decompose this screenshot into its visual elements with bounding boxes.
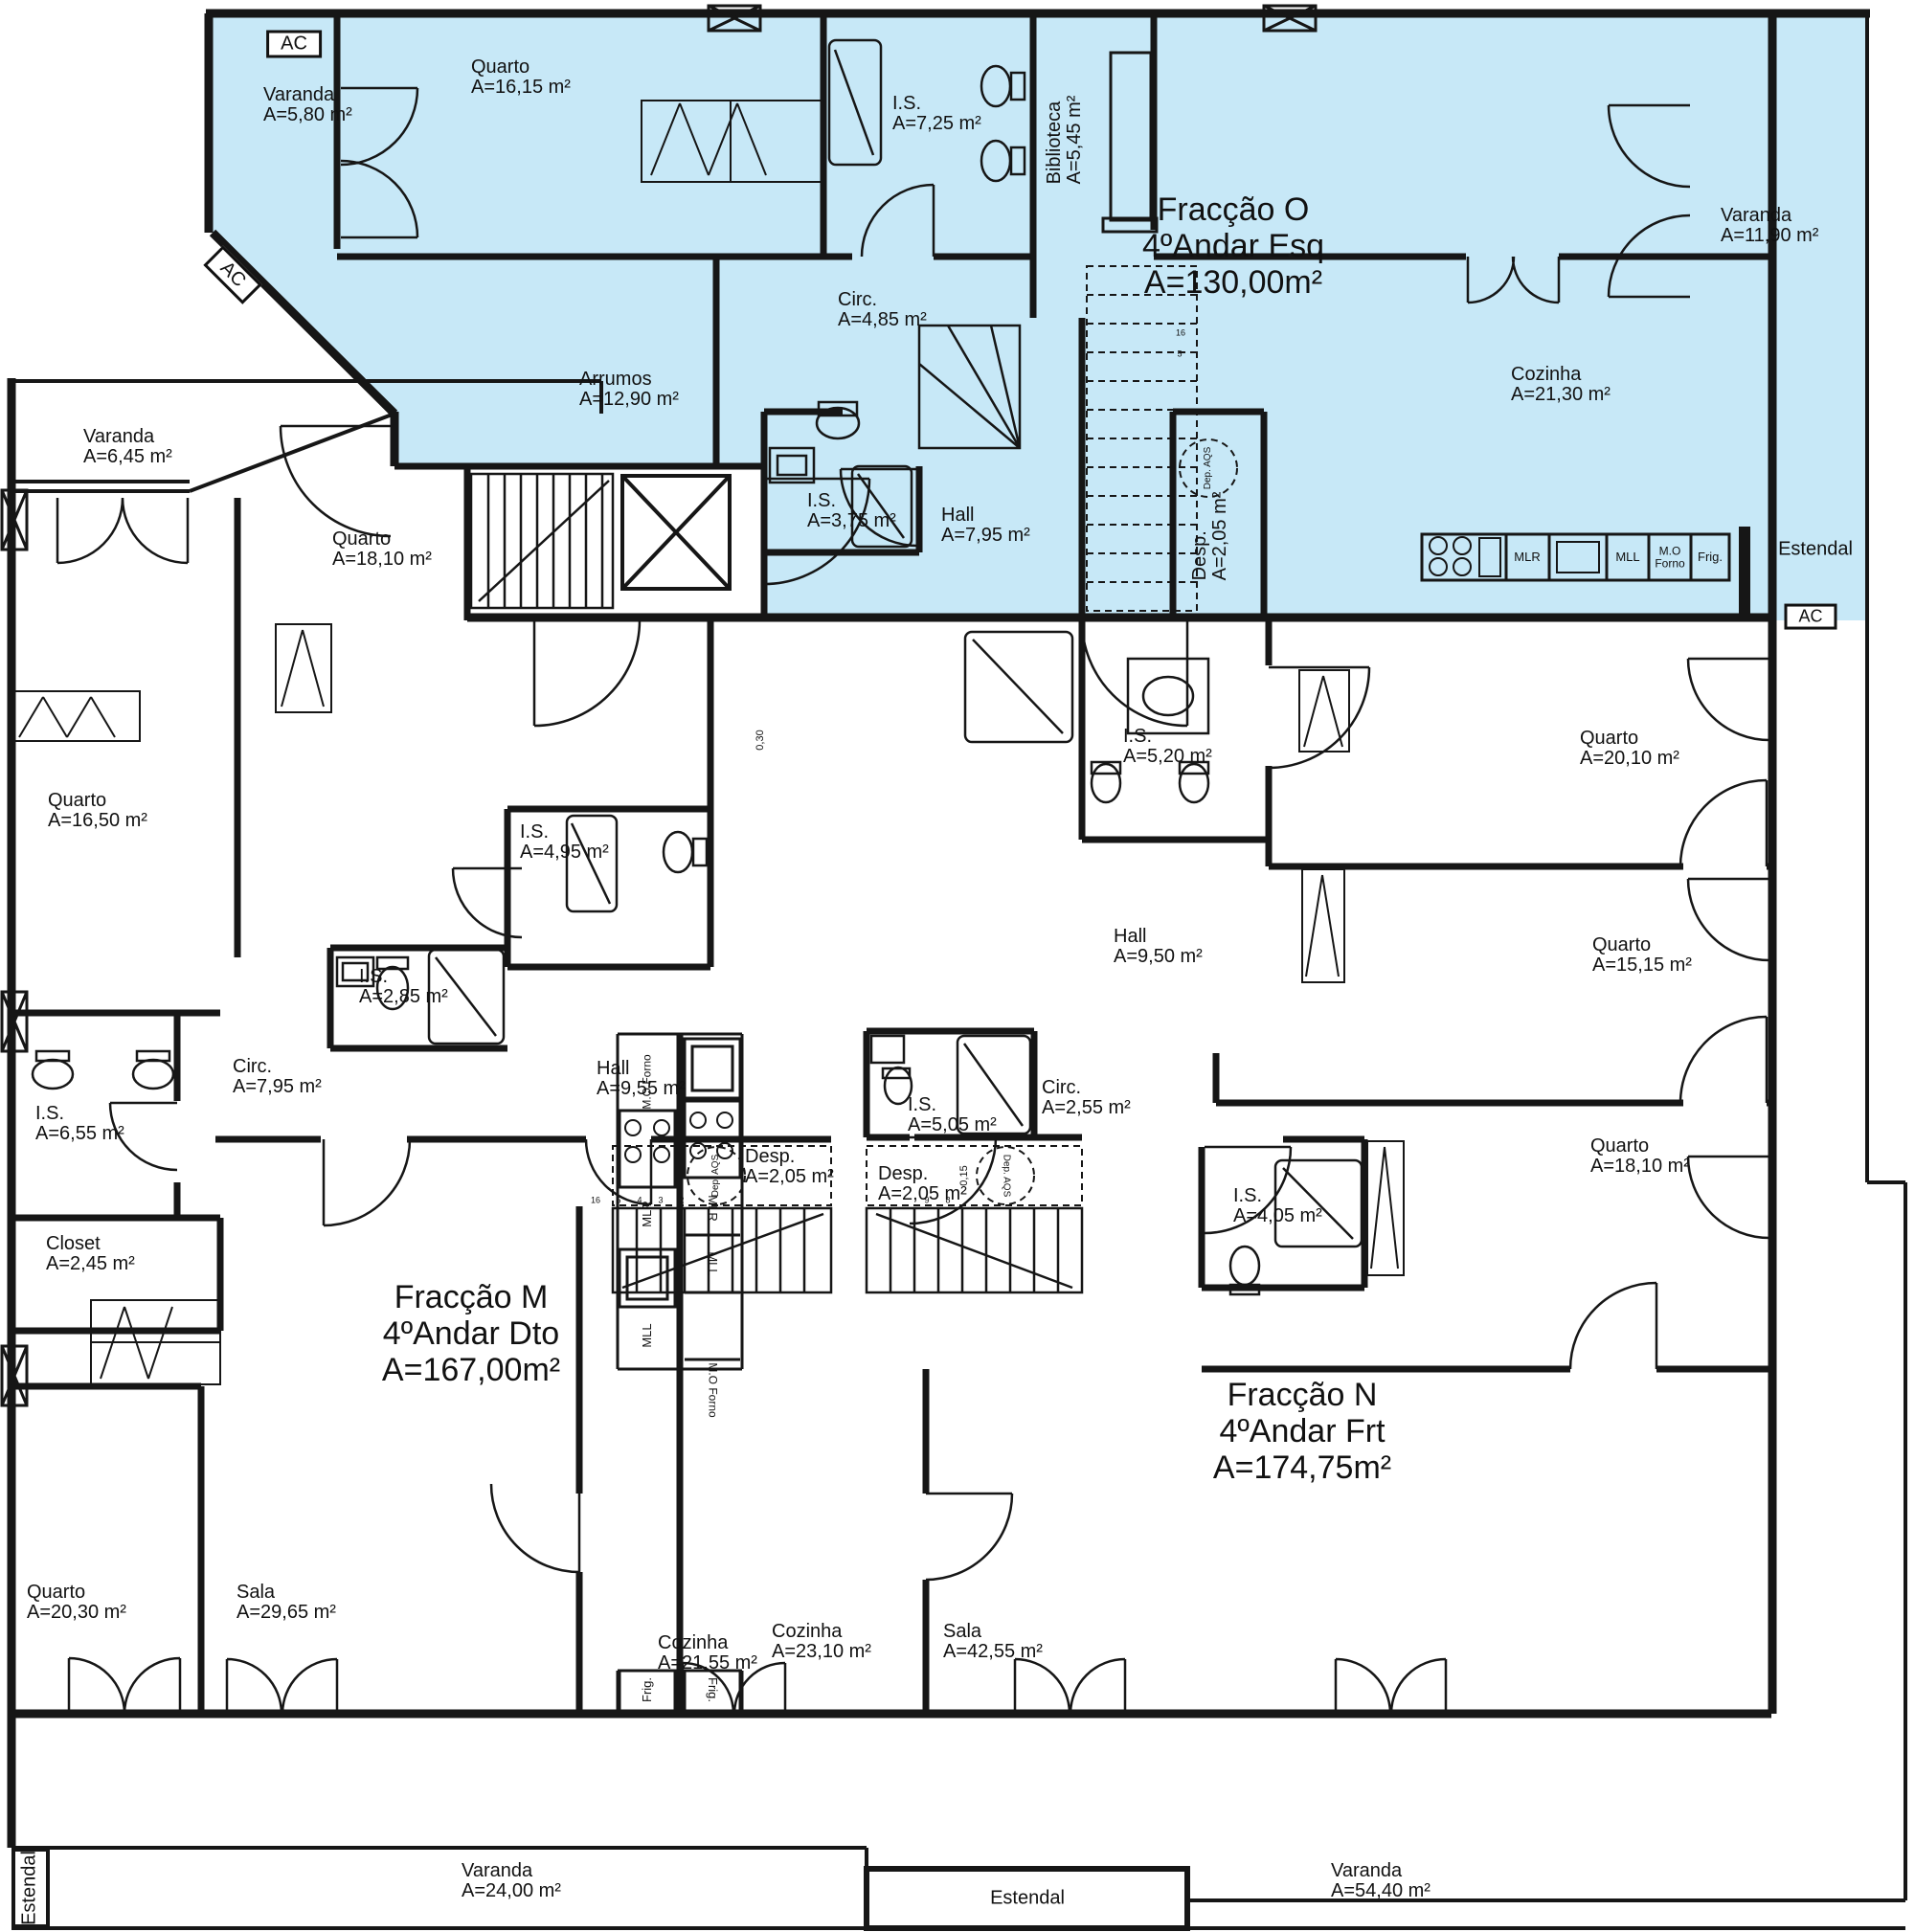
room-name: Biblioteca [1045, 96, 1065, 185]
stair-number-label: 16 [1176, 328, 1185, 337]
room-area: A=23,10 m² [772, 1642, 871, 1662]
room-area: A=2,45 m² [46, 1254, 135, 1274]
room-area: A=5,05 m² [908, 1115, 997, 1135]
appliance-label: M.O Forno [1655, 545, 1684, 569]
room-name: Varanda [1331, 1861, 1431, 1881]
fraction-title-M: Fracção M4ºAndar DtoA=167,00m² [382, 1279, 560, 1388]
appliance-label: MLR [706, 1195, 719, 1221]
room-area: A=29,65 m² [237, 1603, 336, 1623]
stair-number-label: 8 [945, 1196, 950, 1204]
room-area: A=9,50 m² [1114, 947, 1203, 967]
room-label-n-is: I.S.A=5,05 m² [908, 1095, 997, 1135]
room-area: A=20,30 m² [27, 1603, 126, 1623]
fraction-name: Fracção N [1213, 1377, 1391, 1413]
room-label-n-quarto: QuartoA=20,10 m² [1580, 729, 1679, 769]
ac-unit-label: AC [203, 245, 261, 303]
room-area: A=15,15 m² [1592, 955, 1692, 976]
room-name: Quarto [1580, 729, 1679, 749]
appliance-label: Frig. [706, 1677, 719, 1702]
stair-number-label: 4 [637, 1196, 642, 1204]
room-area: A=2,05 m² [745, 1167, 834, 1187]
fraction-floor: 4ºAndar Dto [382, 1315, 560, 1352]
appliance-label: M.O Forno [642, 1054, 654, 1109]
room-name: Circ. [1042, 1078, 1131, 1098]
room-area: A=2,55 m² [1042, 1098, 1131, 1118]
room-label-m-quarto: QuartoA=16,50 m² [48, 791, 147, 831]
appliance-label: MLR [1514, 550, 1540, 564]
dimension-label: 0,15 [959, 1165, 971, 1185]
room-name: Cozinha [1511, 365, 1611, 385]
room-name: Circ. [838, 290, 927, 310]
equipment-label: Dep. AQS [1001, 1155, 1011, 1197]
room-label-o-varanda: VarandaA=11,90 m² [1721, 206, 1818, 246]
room-label-m-is: I.S.A=2,85 m² [359, 967, 448, 1007]
room-label-o-hall: HallA=7,95 m² [941, 505, 1030, 546]
room-area: A=24,00 m² [462, 1881, 561, 1901]
room-name: Quarto [471, 57, 571, 78]
room-name: I.S. [35, 1104, 124, 1124]
room-area: A=2,85 m² [359, 987, 448, 1007]
room-area: A=42,55 m² [943, 1642, 1043, 1662]
room-label-m-circ: Circ.A=7,95 m² [233, 1057, 322, 1097]
room-name: Hall [1114, 927, 1203, 947]
dimension-label: 0,30 [755, 730, 767, 750]
appliance-label: MLL [1615, 550, 1639, 564]
room-label-o-arrumos: ArrumosA=12,90 m² [579, 370, 679, 410]
appliance-label: Frig. [641, 1677, 654, 1702]
room-name: Arrumos [579, 370, 679, 390]
room-area: A=18,10 m² [1590, 1157, 1690, 1177]
equipment-label: Dep. AQS [1204, 447, 1214, 489]
room-area: A=21,55 m² [658, 1653, 757, 1674]
room-label-o-cozinha: CozinhaA=21,30 m² [1511, 365, 1611, 405]
room-area: A=4,05 m² [1233, 1206, 1322, 1226]
fraction-name: Fracção M [382, 1279, 560, 1315]
room-name: Desp. [878, 1164, 967, 1184]
room-name: Desp. [745, 1147, 834, 1167]
room-name: Varanda [83, 427, 172, 447]
room-area: A=4,85 m² [838, 310, 927, 330]
room-label-o-is: I.S.A=3,75 m² [807, 491, 896, 531]
room-name: I.S. [1123, 727, 1212, 747]
labels-layer: Fracção O4ºAndar EsqA=130,00m²Fracção M4… [0, 0, 1915, 1932]
stair-number-label: 16 [591, 1196, 600, 1204]
room-area: A=21,30 m² [1511, 385, 1611, 405]
ac-unit-label: AC [266, 31, 322, 58]
appliance-label: Frig. [1698, 550, 1723, 564]
stair-number-label: 5 [1177, 349, 1182, 358]
room-name: I.S. [807, 491, 896, 511]
room-area: A=2,05 m² [1210, 492, 1230, 581]
room-label-o-circ: Circ.A=4,85 m² [838, 290, 927, 330]
room-name: Quarto [332, 529, 432, 550]
room-area: A=7,95 m² [233, 1077, 322, 1097]
room-name: Desp. [1190, 492, 1210, 581]
estendal-label: Estendal [990, 1889, 1065, 1909]
fraction-floor: 4ºAndar Esq [1142, 228, 1324, 264]
appliance-label: M.O Forno [707, 1362, 719, 1417]
room-label-n-is: I.S.A=4,05 m² [1233, 1186, 1322, 1226]
room-label-m-varanda: VarandaA=24,00 m² [462, 1861, 561, 1901]
room-label-m-cozinha: CozinhaA=21,55 m² [658, 1633, 757, 1674]
room-label-m-closet: ClosetA=2,45 m² [46, 1234, 135, 1274]
room-label-o-biblioteca: BibliotecaA=5,45 m² [1045, 96, 1085, 185]
room-label-m-is: I.S.A=4,95 m² [520, 822, 609, 863]
room-name: I.S. [892, 94, 981, 114]
room-label-o-varanda: VarandaA=5,80 m² [263, 85, 352, 125]
room-label-o-quarto: QuartoA=16,15 m² [471, 57, 571, 98]
room-name: Quarto [1590, 1136, 1690, 1157]
room-label-m-varanda: VarandaA=6,45 m² [83, 427, 172, 467]
room-name: Quarto [27, 1583, 126, 1603]
room-area: A=7,95 m² [941, 526, 1030, 546]
fraction-floor: 4ºAndar Frt [1213, 1413, 1391, 1449]
room-area: A=12,90 m² [579, 390, 679, 410]
fraction-area: A=167,00m² [382, 1352, 560, 1388]
room-area: A=16,50 m² [48, 811, 147, 831]
fraction-area: A=130,00m² [1142, 264, 1324, 301]
room-area: A=3,75 m² [807, 511, 896, 531]
room-area: A=11,90 m² [1721, 226, 1818, 246]
room-name: Circ. [233, 1057, 322, 1077]
room-area: A=2,05 m² [878, 1184, 967, 1204]
room-name: Varanda [1721, 206, 1818, 226]
room-name: I.S. [520, 822, 609, 842]
room-area: A=5,80 m² [263, 105, 352, 125]
room-name: I.S. [1233, 1186, 1322, 1206]
fraction-name: Fracção O [1142, 191, 1324, 228]
equipment-label: Dep. AQS [711, 1155, 722, 1197]
fraction-area: A=174,75m² [1213, 1449, 1391, 1486]
room-label-n-quarto: QuartoA=18,10 m² [1590, 1136, 1690, 1177]
room-name: Varanda [263, 85, 352, 105]
room-label-n-is: I.S.A=5,20 m² [1123, 727, 1212, 767]
room-label-m-desp: Desp.A=2,05 m² [745, 1147, 834, 1187]
stair-number-label: 9 [924, 1196, 929, 1204]
stair-number-label: 3 [658, 1196, 663, 1204]
ac-unit-label: AC [1784, 604, 1836, 630]
appliance-label: MLL [641, 1323, 654, 1347]
stair-number-label: 2 [679, 1196, 684, 1204]
room-area: A=18,10 m² [332, 550, 432, 570]
room-label-n-circ: Circ.A=2,55 m² [1042, 1078, 1131, 1118]
appliance-label: MLR [641, 1201, 654, 1226]
room-area: A=7,25 m² [892, 114, 981, 134]
room-name: Closet [46, 1234, 135, 1254]
room-name: Sala [943, 1622, 1043, 1642]
room-name: Quarto [48, 791, 147, 811]
floor-plan-page: Fracção O4ºAndar EsqA=130,00m²Fracção M4… [0, 0, 1915, 1932]
room-area: A=5,45 m² [1065, 96, 1085, 185]
room-area: A=4,95 m² [520, 842, 609, 863]
room-label-m-quarto: QuartoA=18,10 m² [332, 529, 432, 570]
room-name: Varanda [462, 1861, 561, 1881]
room-label-m-is: I.S.A=6,55 m² [35, 1104, 124, 1144]
room-area: A=5,20 m² [1123, 747, 1212, 767]
room-area: A=16,15 m² [471, 78, 571, 98]
room-label-n-cozinha: CozinhaA=23,10 m² [772, 1622, 871, 1662]
room-label-m-sala: SalaA=29,65 m² [237, 1583, 336, 1623]
fraction-title-O: Fracção O4ºAndar EsqA=130,00m² [1142, 191, 1324, 301]
fraction-title-N: Fracção N4ºAndar FrtA=174,75m² [1213, 1377, 1391, 1486]
room-label-n-sala: SalaA=42,55 m² [943, 1622, 1043, 1662]
room-name: I.S. [359, 967, 448, 987]
room-area: A=20,10 m² [1580, 749, 1679, 769]
appliance-label: MLL [706, 1251, 719, 1275]
room-name: Hall [941, 505, 1030, 526]
room-label-o-is: I.S.A=7,25 m² [892, 94, 981, 134]
room-name: Quarto [1592, 935, 1692, 955]
room-label-n-quarto: QuartoA=15,15 m² [1592, 935, 1692, 976]
room-area: A=6,55 m² [35, 1124, 124, 1144]
room-name: Sala [237, 1583, 336, 1603]
room-area: A=6,45 m² [83, 447, 172, 467]
room-label-n-hall: HallA=9,50 m² [1114, 927, 1203, 967]
room-label-n-desp: Desp.A=2,05 m² [878, 1164, 967, 1204]
room-area: A=54,40 m² [1331, 1881, 1431, 1901]
room-label-n-varanda: VarandaA=54,40 m² [1331, 1861, 1431, 1901]
room-name: Cozinha [772, 1622, 871, 1642]
stair-number-label: 5 [616, 1196, 620, 1204]
room-label-m-quarto: QuartoA=20,30 m² [27, 1583, 126, 1623]
estendal-label: Estendal [1778, 540, 1853, 560]
room-name: Cozinha [658, 1633, 757, 1653]
room-name: I.S. [908, 1095, 997, 1115]
room-label-o-desp: Desp.A=2,05 m² [1190, 492, 1230, 581]
estendal-label: Estendal [20, 1851, 40, 1925]
